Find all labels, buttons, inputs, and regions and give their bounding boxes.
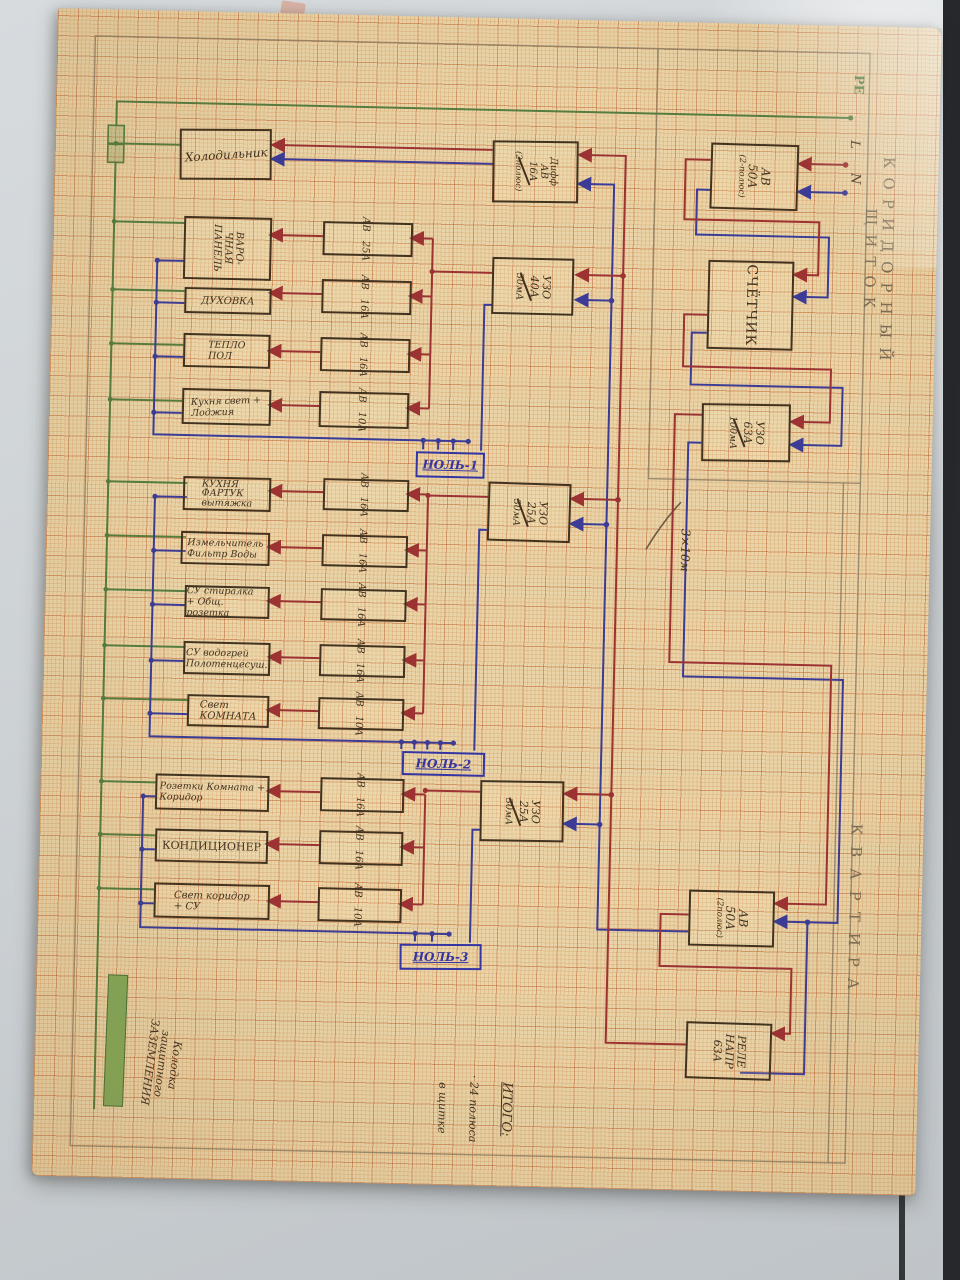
breaker-rating: 10А [355,412,366,433]
load-label: Свет коридор + СУ [174,889,250,913]
breaker-box-g3c2: АВ 16А [319,830,404,866]
diff-breaker-box: Дифф АВ 16А (2полюс) [492,140,579,203]
line-entry-label: L [844,134,862,154]
load-box-g3c3: Свет коридор + СУ [153,882,270,920]
breaker-rating: 16А [358,299,369,320]
cable-size-label: 3×10м [661,504,707,597]
load-label: Измельчитель Фильтр Воды [187,537,264,561]
load-label: КУХНЯ ФАРТУК вытяжка [201,479,252,509]
neutral-bus-label: НОЛЬ-1 [422,457,478,472]
load-label: Розетки Комната + Коридор [159,781,265,805]
load-box-g2c2: Измельчитель Фильтр Воды [180,531,270,566]
load-box-g2c5: Свет КОМНАТА [187,694,270,728]
load-label: СУ водогрей Полотенцесуш. [186,647,268,671]
diff-type: АВ [537,152,548,192]
breaker-box-g2c1: АВ 16А [323,478,410,512]
breaker-rating: 16А [355,607,366,628]
load-label: СУ стиралка + Общ. розетка [186,585,268,620]
breaker-type: АВ [359,275,370,290]
breaker-box-g1c4: АВ 10А [319,391,410,429]
load-box-g1c1: ВАРО- ЧНАЯ ПАНЕЛЬ [183,216,272,281]
breaker-rating: 16А [352,850,363,871]
breaker-rating: 10А [351,907,362,928]
breaker-box-g2c3: АВ 16А [320,588,407,622]
load-label: ВАРО- ЧНАЯ ПАНЕЛЬ [211,224,244,272]
breaker-type: АВ [352,883,363,898]
breaker-rating: 50А [745,155,759,199]
neutral-entry-label: N [845,168,863,188]
load-box-g2c4: СУ водогрей Полотенцесуш. [183,641,271,676]
breaker-type: АВ [353,826,364,841]
breaker-box-g3c1: АВ 16А [320,777,405,813]
voltage-relay-box: РЕЛЕ НАПР 63А [685,1021,773,1081]
breaker-type: АВ [358,473,369,488]
neutral-bus-label: НОЛЬ-2 [415,756,471,771]
load-label: КОНДИЦИОНЕР [162,839,261,854]
load-label: ТЕПЛО ПОЛ [208,339,246,362]
ground-terminal-symbol [108,125,124,143]
load-label: Свет КОМНАТА [199,699,256,722]
neutral-bus-3: НОЛЬ-3 [400,944,482,970]
relay-kind: НАПР [722,1033,735,1068]
meter-label: СЧЁТЧИК [742,264,759,346]
totals-line1: · 24 полюса [466,1075,480,1143]
load-box-g1c4: Кухня свет + Лоджия [182,388,272,426]
breaker-box-g2c5: АВ 10А [318,697,405,731]
breaker-box-g1c1: АВ 25А [322,221,413,257]
breaker-type: АВ [357,529,368,544]
breaker-rating: 16А [356,553,367,574]
breaker-type: АВ [356,388,367,403]
rcd-box-group2: УЗО 25А 30мА [487,482,572,544]
rcd-leakage: 100мА [727,416,738,449]
breaker-type: АВ [354,773,365,788]
photo-scene: КОРИДОРНЫЙ ЩИТОК КВАРТИРА PE L N АВ 50А … [0,0,960,1280]
breaker-box-g1c3: АВ 16А [320,337,411,373]
pe-entry-label: PE [847,68,868,100]
load-label: Холодильник [184,145,268,164]
table-edge-strip [943,0,960,1280]
load-box-g2c3: СУ стиралка + Общ. розетка [184,585,270,619]
breaker-type: АВ [356,583,367,598]
breaker-rating: 25А [359,241,370,262]
rcd-type: УЗО [529,796,541,826]
apartment-main-breaker-box: АВ 50А (2полюс) [688,890,775,948]
breaker-rating: 16А [357,497,368,518]
breaker-type: АВ [357,333,368,348]
rcd-box-group3: УЗО 25А 30мА [479,780,564,842]
totals-line2: в щитке [435,1074,449,1142]
rcd-type: УЗО [540,272,553,302]
corridor-main-breaker-box: АВ 50А (2-полюс) [709,143,799,212]
breaker-rating: 16А [354,663,365,684]
breaker-box-g3c3: АВ 10А [317,887,402,923]
load-box-g3c1: Розетки Комната + Коридор [155,773,270,812]
load-box-g1c2: ДУХОВКА [184,287,272,315]
breaker-poles: (2-полюс) [736,155,746,198]
apartment-section-title: КВАРТИРА [837,804,870,1020]
breaker-type: АВ [354,639,365,654]
breaker-type: АВ [353,692,364,707]
breaker-poles: (2полюс) [714,898,724,938]
load-label: Кухня свет + Лоджия [191,395,262,419]
load-box-fridge: Холодильник [180,129,272,180]
breaker-type: АВ [736,898,750,939]
load-box-g2c1: КУХНЯ ФАРТУК вытяжка [183,476,272,512]
diff-rating: 16А [526,152,537,192]
breaker-rating: 50А [723,898,737,939]
neutral-bus-2: НОЛЬ-2 [402,751,486,777]
load-box-g1c3: ТЕПЛО ПОЛ [183,333,271,369]
totals-heading: ИТОГО: [497,1075,513,1143]
diff-label: Дифф [547,152,558,192]
breaker-rating: 16А [354,797,365,818]
neutral-bus-label: НОЛЬ-3 [413,950,469,964]
load-box-g3c2: КОНДИЦИОНЕР [155,828,269,864]
ground-block-label: Колодка защитного ЗАЗЕМЛЕНИЯ [120,978,202,1150]
breaker-type: АВ [758,155,772,199]
load-label: ДУХОВКА [201,295,255,307]
meter-box: СЧЁТЧИК [706,260,794,351]
breaker-box-g2c2: АВ 16А [321,534,408,568]
breaker-box-g1c2: АВ 16А [321,279,412,315]
corridor-rcd-box: УЗО 63А 100мА [701,403,791,462]
schematic-paper: КОРИДОРНЫЙ ЩИТОК КВАРТИРА PE L N АВ 50А … [32,8,942,1196]
neutral-bus-1: НОЛЬ-1 [415,451,485,479]
totals-note: ИТОГО: · 24 полюса в щитке [423,1043,526,1175]
relay-rating: 63А [710,1033,723,1068]
breaker-rating: 16А [357,357,368,378]
breaker-type: АВ [360,217,371,232]
breaker-box-g2c4: АВ 16А [319,644,406,678]
rcd-box-group1: УЗО 40А 30мА [491,257,574,316]
breaker-rating: 10А [352,716,363,737]
rcd-type: УЗО [753,416,765,449]
